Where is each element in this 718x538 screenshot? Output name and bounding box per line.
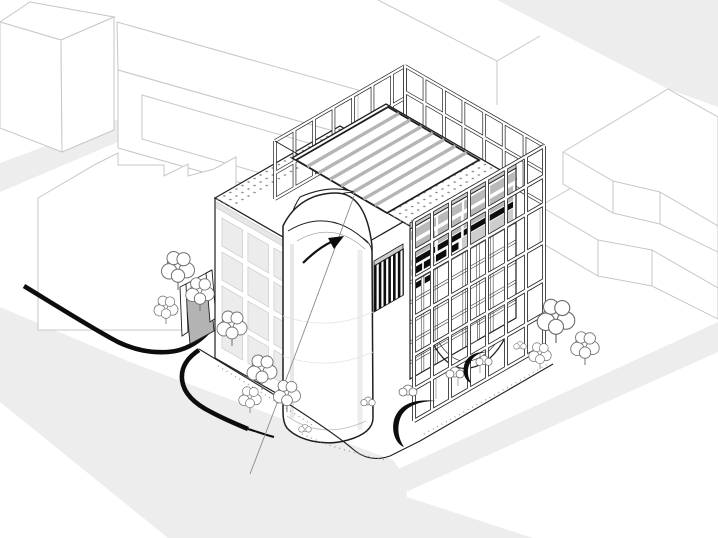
axonometric-site-diagram	[0, 0, 718, 538]
site-axonometric-svg	[0, 0, 718, 538]
context-building-tall-box	[0, 2, 114, 152]
